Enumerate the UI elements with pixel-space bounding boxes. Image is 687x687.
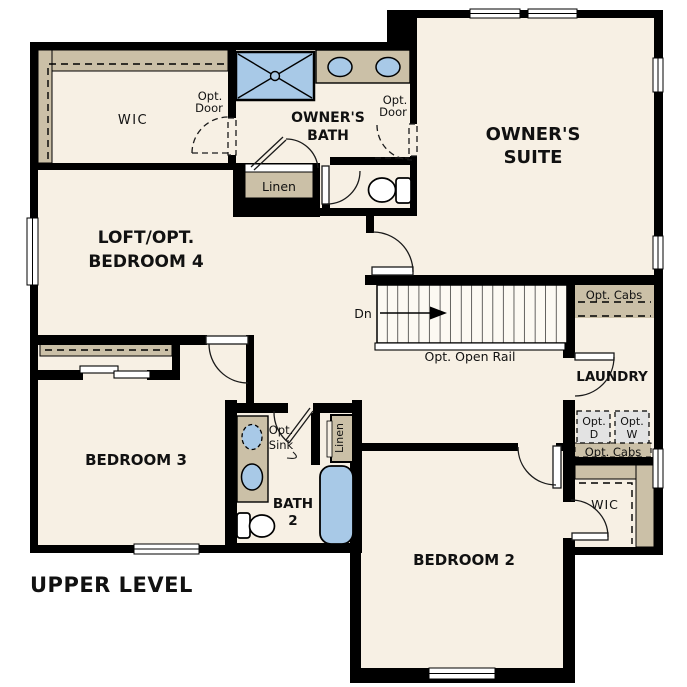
room-label-bedroom3: BEDROOM 3 <box>85 451 187 469</box>
room-label-owners-suite-line2: SUITE <box>504 147 563 168</box>
window <box>653 449 663 488</box>
owners-double-vanity <box>316 50 410 83</box>
label-opt-dryer-line2: D <box>590 428 598 441</box>
stairs <box>375 285 567 350</box>
optional-sink <box>242 425 262 450</box>
room-label-owners-bath-line1: OWNER'S <box>291 110 365 126</box>
label-linen-owner: Linen <box>262 179 296 194</box>
vanity-sink <box>328 58 352 77</box>
wic-owner-shelf-top <box>38 50 228 71</box>
label-opt-washer-line1: Opt. <box>620 415 643 428</box>
shower-drain <box>271 72 280 81</box>
owners-toilet <box>369 178 412 203</box>
wic-bedroom2-shelf-right <box>636 465 654 547</box>
room-label-bedroom2: BEDROOM 2 <box>413 551 515 569</box>
label-opt-door-suite-line2: Door <box>379 105 407 119</box>
wic-owner-shelf-left <box>38 50 52 163</box>
floor-plan-page: WIC Opt. Door OWNER'S BATH Opt. Door OWN… <box>0 0 687 687</box>
label-opt-sink-line1: Opt. <box>269 423 294 437</box>
room-label-laundry: LAUNDRY <box>576 369 648 385</box>
label-stairs-dn: Dn <box>354 306 372 321</box>
label-opt-cabs-upper: Opt. Cabs <box>586 288 643 302</box>
room-label-owners-bath-line2: BATH <box>307 128 349 144</box>
vanity-sink <box>242 464 263 490</box>
shower <box>236 52 314 100</box>
window <box>429 668 495 679</box>
label-linen-bath2: Linen <box>333 423 346 453</box>
room-label-loft-line1: LOFT/OPT. <box>98 228 194 248</box>
label-opt-cabs-lower: Opt. Cabs <box>585 445 642 459</box>
bath2-vanity <box>237 416 268 502</box>
label-opt-sink-line2: Sink <box>269 438 294 452</box>
floor-plan: WIC Opt. Door OWNER'S BATH Opt. Door OWN… <box>0 0 687 687</box>
window <box>134 544 199 554</box>
bath2-toilet <box>237 513 275 538</box>
label-opt-dryer-line1: Opt. <box>582 415 605 428</box>
room-label-bath2-line1: BATH <box>273 496 313 512</box>
room-label-wic-owner: WIC <box>118 113 148 128</box>
label-opt-door-wic-line2: Door <box>195 101 223 115</box>
label-opt-open-rail: Opt. Open Rail <box>425 349 516 364</box>
vanity-sink <box>376 58 400 77</box>
stair-treads <box>377 285 567 343</box>
plan-title: UPPER LEVEL <box>30 573 193 597</box>
room-label-owners-suite-line1: OWNER'S <box>486 124 581 145</box>
window <box>470 9 520 18</box>
room-label-loft-line2: BEDROOM 4 <box>88 252 204 272</box>
room-label-bath2-line2: 2 <box>288 513 297 529</box>
window <box>528 9 577 18</box>
window <box>27 218 38 285</box>
bathtub <box>320 466 353 544</box>
label-opt-washer-line2: W <box>627 428 638 441</box>
window <box>653 58 663 92</box>
window <box>653 236 663 269</box>
room-label-wic-bedroom2: WIC <box>591 497 619 512</box>
